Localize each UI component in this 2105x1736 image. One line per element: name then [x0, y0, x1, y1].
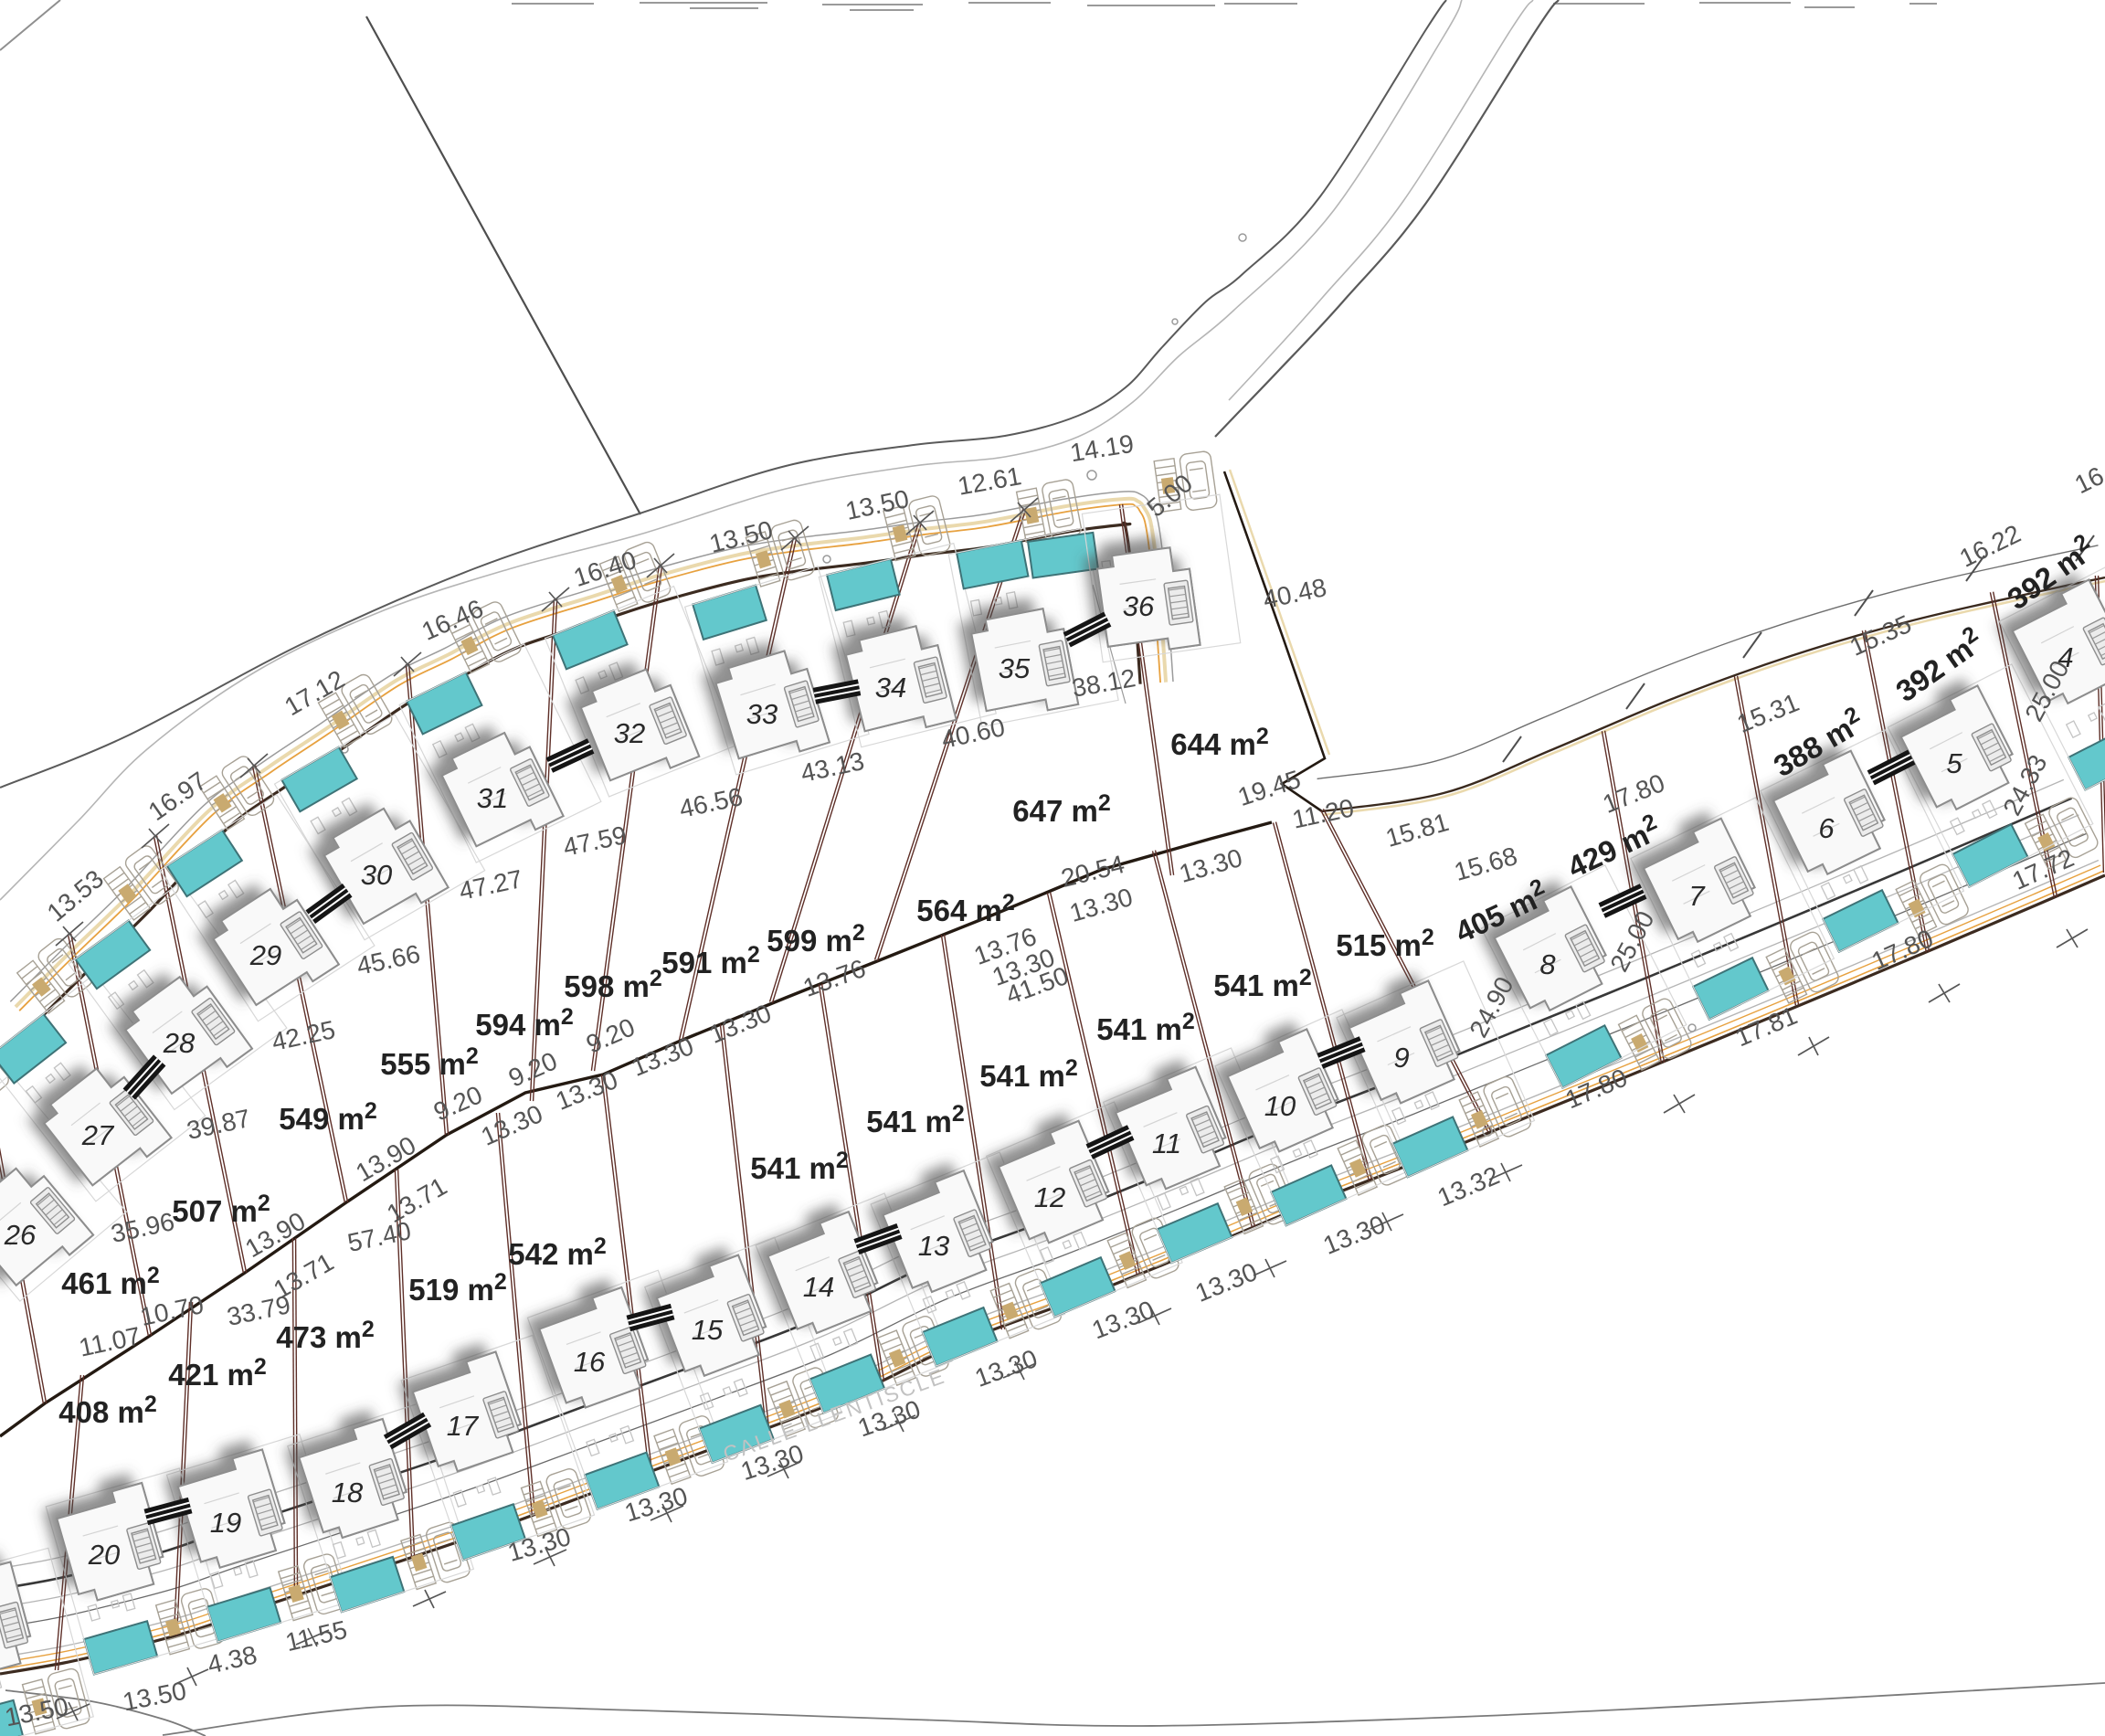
svg-text:541 m2: 541 m2 [750, 1148, 848, 1185]
svg-text:594 m2: 594 m2 [475, 1004, 573, 1042]
svg-text:8: 8 [1539, 948, 1556, 980]
svg-text:461 m2: 461 m2 [61, 1263, 159, 1300]
svg-text:15: 15 [692, 1314, 724, 1346]
svg-text:598 m2: 598 m2 [564, 966, 661, 1003]
svg-text:32: 32 [614, 717, 645, 749]
svg-text:541 m2: 541 m2 [979, 1055, 1077, 1093]
svg-text:549 m2: 549 m2 [279, 1098, 376, 1136]
svg-text:18: 18 [332, 1477, 364, 1508]
svg-text:33: 33 [746, 698, 777, 730]
svg-text:541 m2: 541 m2 [1213, 965, 1311, 1002]
svg-text:473 m2: 473 m2 [276, 1317, 374, 1354]
svg-text:36: 36 [1123, 590, 1155, 622]
svg-text:17: 17 [447, 1410, 480, 1442]
svg-text:10: 10 [1264, 1090, 1296, 1122]
svg-text:541 m2: 541 m2 [1096, 1009, 1194, 1046]
svg-text:29: 29 [249, 939, 281, 971]
svg-text:421 m2: 421 m2 [168, 1354, 266, 1392]
svg-text:591 m2: 591 m2 [661, 942, 759, 979]
svg-text:515 m2: 515 m2 [1336, 925, 1433, 962]
svg-text:647 m2: 647 m2 [1012, 790, 1110, 828]
svg-text:20: 20 [88, 1539, 120, 1571]
svg-text:19: 19 [210, 1507, 241, 1539]
svg-text:31: 31 [477, 782, 508, 814]
svg-text:599 m2: 599 m2 [767, 920, 864, 958]
svg-text:11: 11 [1152, 1127, 1181, 1159]
svg-text:9: 9 [1393, 1042, 1409, 1074]
svg-text:555 m2: 555 m2 [380, 1043, 478, 1081]
svg-text:34: 34 [875, 672, 906, 704]
svg-text:519 m2: 519 m2 [408, 1269, 506, 1307]
svg-text:30: 30 [361, 859, 392, 891]
svg-text:27: 27 [81, 1119, 115, 1151]
svg-text:28: 28 [163, 1027, 196, 1059]
svg-text:6: 6 [1818, 812, 1835, 844]
svg-text:16: 16 [574, 1346, 606, 1378]
svg-text:35: 35 [999, 652, 1031, 684]
svg-text:541 m2: 541 m2 [866, 1101, 964, 1138]
svg-text:5: 5 [1946, 747, 1962, 779]
svg-text:14: 14 [803, 1271, 834, 1303]
svg-text:542 m2: 542 m2 [508, 1233, 606, 1271]
svg-text:26: 26 [4, 1219, 37, 1251]
svg-text:408 m2: 408 m2 [58, 1392, 156, 1429]
svg-text:507 m2: 507 m2 [172, 1191, 270, 1228]
svg-text:12: 12 [1034, 1181, 1065, 1213]
svg-text:564 m2: 564 m2 [916, 890, 1014, 927]
svg-text:644 m2: 644 m2 [1170, 724, 1268, 761]
svg-text:7: 7 [1688, 880, 1706, 912]
svg-text:13: 13 [918, 1230, 949, 1262]
